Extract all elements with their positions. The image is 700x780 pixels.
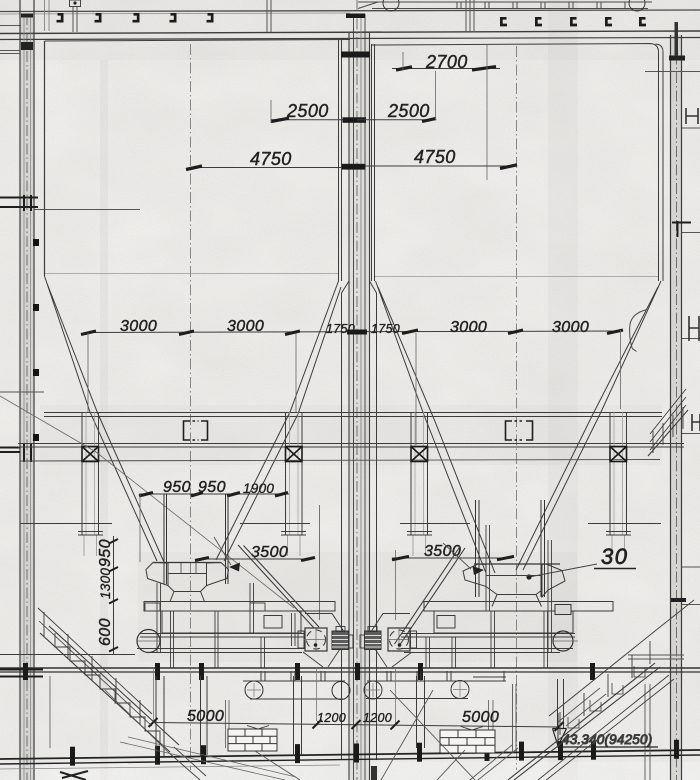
svg-text:3000: 3000 xyxy=(552,319,589,336)
svg-text:3500: 3500 xyxy=(251,544,288,561)
svg-text:1200: 1200 xyxy=(363,711,392,725)
svg-text:950: 950 xyxy=(163,479,191,496)
svg-text:5000: 5000 xyxy=(187,708,224,725)
svg-text:1900: 1900 xyxy=(243,481,274,496)
svg-text:3000: 3000 xyxy=(120,318,157,335)
svg-text:1750: 1750 xyxy=(371,322,400,336)
svg-text:1300: 1300 xyxy=(98,568,113,599)
svg-text:600: 600 xyxy=(97,618,114,646)
svg-text:3000: 3000 xyxy=(450,319,487,336)
svg-text:2500: 2500 xyxy=(286,101,329,121)
svg-text:30: 30 xyxy=(601,544,628,569)
svg-text:4750: 4750 xyxy=(250,149,292,169)
svg-text:43.340(94250): 43.340(94250) xyxy=(562,732,652,747)
svg-text:1200: 1200 xyxy=(317,711,346,725)
svg-text:950: 950 xyxy=(198,479,226,496)
svg-text:4750: 4750 xyxy=(414,147,456,167)
svg-text:950: 950 xyxy=(97,539,114,567)
svg-text:5000: 5000 xyxy=(462,709,499,726)
svg-text:3500: 3500 xyxy=(424,543,461,560)
svg-text:1750: 1750 xyxy=(326,322,355,336)
svg-text:2700: 2700 xyxy=(425,52,468,72)
svg-text:2500: 2500 xyxy=(387,101,430,121)
svg-text:3000: 3000 xyxy=(227,318,264,335)
